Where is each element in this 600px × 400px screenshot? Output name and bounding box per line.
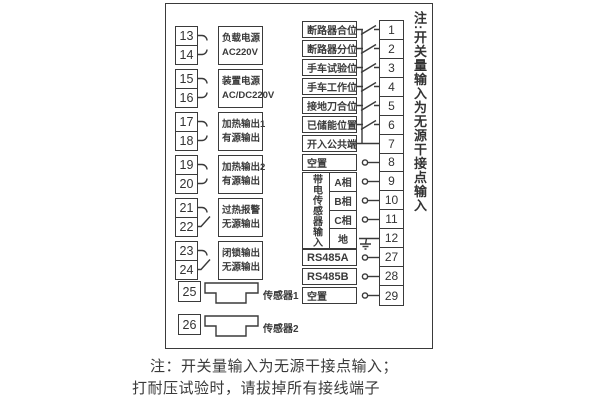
terminal-box-19: 19: [175, 155, 198, 175]
terminal-cell-29: 29: [380, 286, 403, 305]
terminal-box-21: 21: [175, 198, 198, 218]
terminal-cell-3: 3: [380, 59, 403, 78]
hook-23: [198, 251, 207, 256]
phase-a-label: A相: [330, 173, 356, 192]
terminal-wiring-diagram: 13 14 负载电源 AC220V 15 16 装置电源 AC/DC220V 1…: [0, 0, 600, 400]
hook-17: [198, 122, 207, 127]
terminal-cell-9: 9: [380, 172, 403, 191]
label-line: 闭锁输出: [222, 247, 262, 261]
label-line: 加热输出1: [222, 118, 262, 132]
terminal-circle-29: [362, 293, 367, 298]
hook-19: [198, 165, 207, 170]
hook-15: [198, 79, 207, 84]
label-line: 装置电源: [222, 75, 262, 89]
contact-row5: [357, 102, 379, 111]
hook-13: [198, 36, 207, 41]
terminal-cell-2: 2: [380, 40, 403, 59]
terminal-cell-6: 6: [380, 116, 403, 135]
rs485a-label-box: RS485A: [302, 249, 357, 266]
ground-label: 地: [330, 229, 356, 248]
label-line: 有源输出: [222, 175, 262, 189]
terminal-cell-12: 12: [380, 229, 403, 248]
rs485b-label-box: RS485B: [302, 268, 357, 285]
hook-16: [198, 93, 207, 98]
ground-icon: [359, 239, 379, 250]
footer-note-line2: 打耐压试验时，请拔掉所有接线端子: [132, 377, 380, 398]
footer-note-line1: 注：开关量输入为无源干接点输入；: [150, 355, 398, 376]
input-label-spare: 空置: [302, 154, 357, 171]
terminal-number-column: 1 2 3 4 5 6 7 8 9 10 11 12 27 28 29: [379, 20, 404, 306]
label-line: 无源输出: [222, 261, 262, 275]
hook-21: [198, 208, 207, 213]
input-label-breaker-open: 断路器分位: [302, 40, 357, 57]
sensor1-label: 传感器1: [263, 287, 299, 302]
terminal-circle-27: [362, 255, 367, 260]
terminal-circle-28: [362, 274, 367, 279]
terminal-box-16: 16: [175, 88, 198, 108]
phase-c-label: C相: [330, 211, 356, 230]
sensor2-label: 传感器2: [263, 320, 299, 335]
sensor1-plug-icon: [205, 283, 258, 303]
sensor2-plug-icon: [205, 316, 258, 336]
wiring-lines: [0, 0, 600, 400]
input-label-ground-knife: 接地刀合位: [302, 97, 357, 114]
label-line: 加热输出2: [222, 161, 262, 175]
live-sensor-vertical-label: 带电传感器输入: [303, 173, 330, 248]
contact-row2: [357, 45, 379, 54]
terminal-box-17: 17: [175, 112, 198, 132]
label-box-heat-output-1: 加热输出1 有源输出: [218, 112, 263, 151]
terminal-box-23: 23: [175, 241, 198, 261]
label-box-overheat-alarm: 过热报警 无源输出: [218, 198, 263, 237]
terminal-box-22: 22: [175, 217, 198, 237]
terminal-cell-8: 8: [380, 154, 403, 173]
terminal-cell-5: 5: [380, 97, 403, 116]
terminal-circle-10: [362, 198, 367, 203]
terminal-circle-9: [362, 179, 367, 184]
side-note-vertical: 注:开关量输入为无源干接点输入: [407, 11, 432, 226]
label-line: 负载电源: [222, 32, 262, 46]
terminal-box-13: 13: [175, 26, 198, 46]
label-line: AC/DC220V: [222, 89, 262, 103]
label-line: 无源输出: [222, 218, 262, 232]
terminal-cell-28: 28: [380, 267, 403, 286]
label-box-heat-output-2: 加热输出2 有源输出: [218, 155, 263, 194]
input-label-cart-test: 手车试验位: [302, 59, 357, 76]
label-line: 有源输出: [222, 132, 262, 146]
terminal-box-14: 14: [175, 45, 198, 65]
input-label-energy-stored: 已储能位置: [302, 116, 357, 133]
input-label-breaker-closed: 断路器合位: [302, 21, 357, 38]
label-box-lockout-output: 闭锁输出 无源输出: [218, 241, 263, 280]
label-line: AC220V: [222, 46, 262, 60]
label-box-load-power: 负载电源 AC220V: [218, 26, 263, 65]
contact-24: [198, 260, 210, 270]
terminal-box-20: 20: [175, 174, 198, 194]
terminal-box-26: 26: [178, 314, 201, 335]
contact-22: [198, 217, 210, 227]
label-line: 过热报警: [222, 204, 262, 218]
terminal-circle-8: [362, 160, 367, 165]
terminal-cell-4: 4: [380, 78, 403, 97]
contact-row6: [357, 121, 379, 130]
input-label-cart-work: 手车工作位: [302, 78, 357, 95]
hook-18: [198, 136, 207, 141]
terminal-box-25: 25: [178, 281, 201, 302]
contact-row1: [357, 26, 379, 35]
phase-b-label: B相: [330, 192, 356, 211]
live-sensor-group-box: 带电传感器输入 A相 B相 C相 地: [302, 172, 357, 249]
input-label-common: 开入公共端: [302, 135, 357, 152]
terminal-box-24: 24: [175, 260, 198, 280]
terminal-cell-27: 27: [380, 248, 403, 267]
terminal-box-18: 18: [175, 131, 198, 151]
terminal-cell-11: 11: [380, 210, 403, 229]
label-box-device-power: 装置电源 AC/DC220V: [218, 69, 263, 108]
contact-row4: [357, 83, 379, 92]
terminal-cell-7: 7: [380, 135, 403, 154]
hook-20: [198, 179, 207, 184]
terminal-circle-11: [362, 217, 367, 222]
spare-label-box: 空置: [302, 287, 357, 304]
hook-14: [198, 50, 207, 55]
contact-row3: [357, 64, 379, 73]
terminal-cell-10: 10: [380, 191, 403, 210]
terminal-cell-1: 1: [380, 21, 403, 40]
terminal-box-15: 15: [175, 69, 198, 89]
